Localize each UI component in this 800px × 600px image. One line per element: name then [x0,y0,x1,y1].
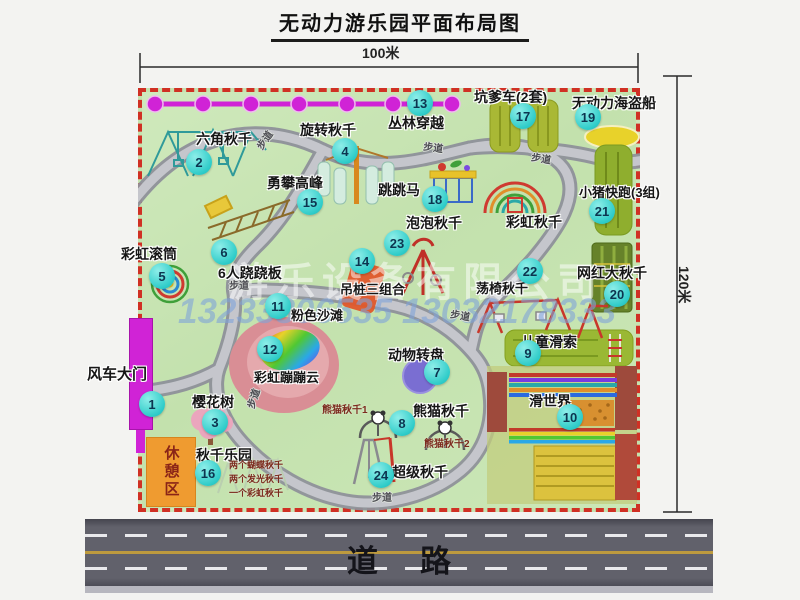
road: 道路 [85,519,713,586]
pig-run-graphic [595,145,632,235]
animal-turntable-graphic [403,359,437,393]
height-dimension-label: 120米 [674,266,694,303]
jump-horse-graphic [430,159,476,202]
width-dimension-label: 100米 [362,43,399,63]
windmill-gate-graphic [129,318,153,430]
jungle-zipline-graphic [147,96,460,112]
super-swing-graphic [354,438,394,484]
windmill-gate-post [136,430,145,453]
road-label: 道路 [85,536,713,581]
watermark-phone: 13233806535 13032178333 [178,292,616,332]
rest-area-box: 休憩区 [146,437,196,507]
slide-world-graphic [487,366,637,504]
rest-area-label: 休憩区 [161,445,182,499]
rainbow-swing-graphic [485,183,545,213]
kids-zipline-graphic [505,330,633,366]
road-shoulder [85,586,713,593]
